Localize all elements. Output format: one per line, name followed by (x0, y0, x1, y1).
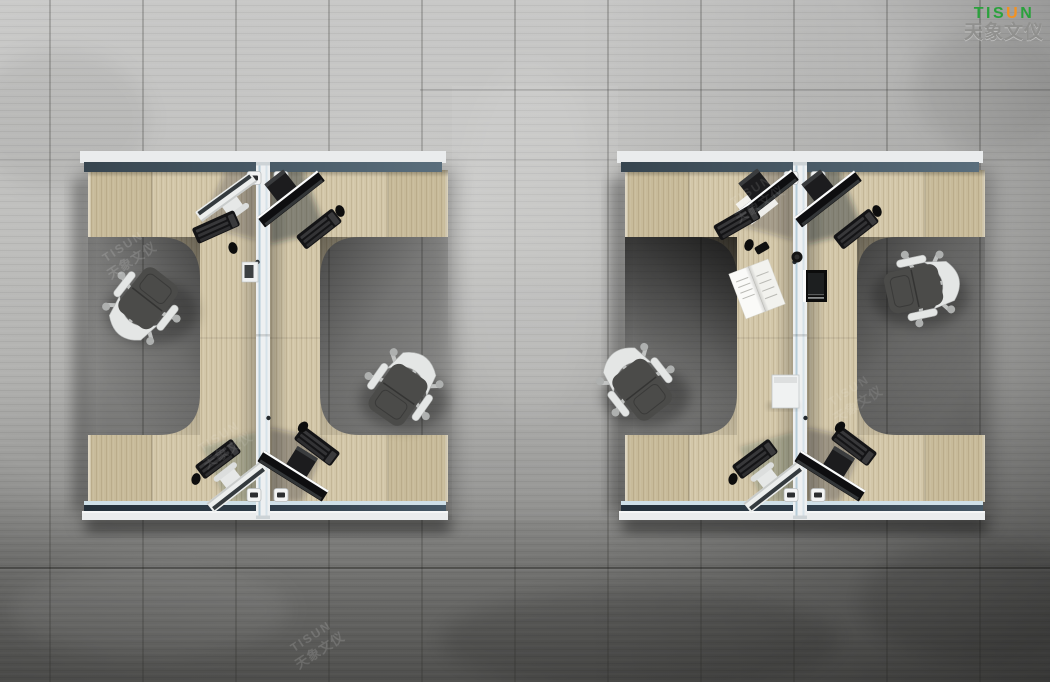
workstation-cluster-left (72, 151, 454, 532)
divider-mounted-screen (803, 270, 827, 302)
logo-subtitle: 天象文仪 (964, 23, 1044, 44)
divider-shelf (242, 262, 258, 282)
logo-suffix: N (1020, 5, 1034, 22)
divider-storage-box (768, 375, 799, 409)
logo-prefix: TIS (974, 5, 1006, 22)
office-render-scene: TISUN 天象文仪 TISUN天象文仪 TISUN天象文仪 TISUN天象文仪… (0, 0, 1050, 682)
tisun-logo: TISUN 天象文仪 (964, 5, 1044, 43)
logo-wordmark: TISUN (964, 5, 1044, 23)
render-canvas (0, 0, 1050, 682)
logo-accent-letter: U (1006, 5, 1020, 22)
cup (792, 252, 803, 263)
